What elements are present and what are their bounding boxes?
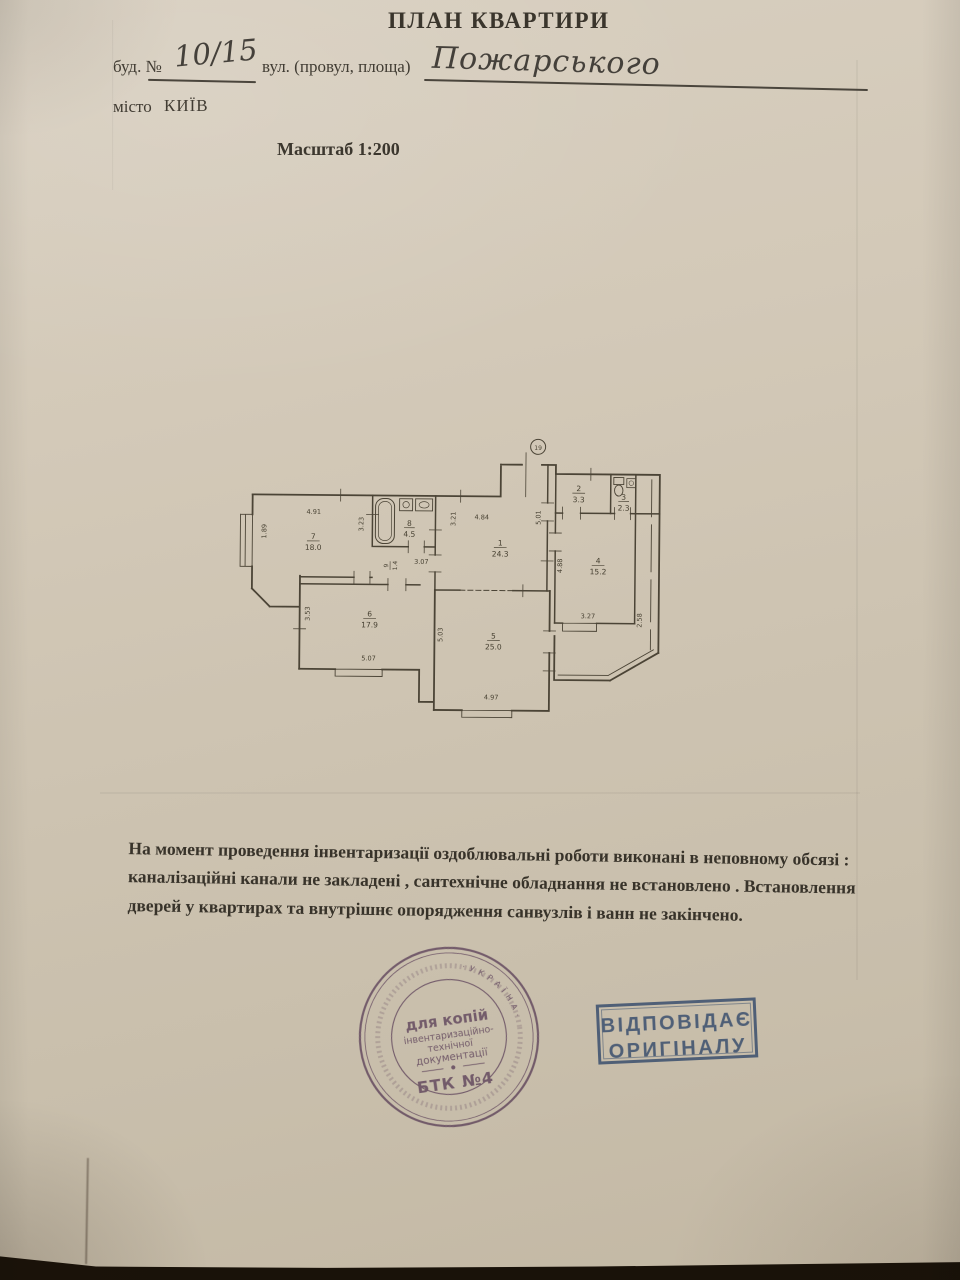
- svg-text:8: 8: [407, 519, 412, 528]
- svg-text:3.23: 3.23: [357, 517, 365, 532]
- svg-text:2: 2: [576, 484, 581, 493]
- svg-text:5.01: 5.01: [534, 510, 542, 525]
- inventory-note: На момент проведення інвентаризації оздо…: [127, 834, 876, 931]
- room-label-2: 2 3.3: [573, 484, 585, 504]
- svg-text:2.3: 2.3: [618, 504, 630, 513]
- svg-text:5.03: 5.03: [436, 627, 444, 642]
- round-stamp: · У К Р А Ї Н А · для копій інвентаризац…: [337, 925, 561, 1149]
- room-label-9: 9 1.4: [383, 561, 399, 571]
- bathtub-icon: [375, 498, 394, 543]
- svg-text:5: 5: [491, 631, 496, 640]
- svg-text:4: 4: [596, 556, 601, 565]
- svg-text:1: 1: [498, 539, 503, 548]
- svg-text:3.53: 3.53: [304, 606, 312, 621]
- scale-label: Масштаб 1:200: [277, 139, 400, 160]
- svg-text:3.07: 3.07: [414, 558, 429, 566]
- svg-text:4.5: 4.5: [403, 530, 415, 539]
- svg-text:6: 6: [367, 609, 372, 618]
- street-label: вул. (провул, площа): [262, 57, 411, 77]
- room-label-4: 4 15.2: [590, 556, 607, 576]
- corner-sink-icon: [627, 479, 636, 488]
- svg-text:18.0: 18.0: [305, 543, 322, 552]
- svg-text:19: 19: [534, 445, 542, 452]
- svg-text:25.0: 25.0: [485, 642, 502, 651]
- svg-text:1.4: 1.4: [392, 561, 399, 571]
- washer-icon: [400, 499, 413, 511]
- rect-stamp-line: ВІДПОВІДАЄ: [599, 1007, 754, 1040]
- city-label: місто: [113, 97, 152, 117]
- building-number-value: 10/15: [173, 32, 259, 73]
- svg-text:15.2: 15.2: [590, 567, 607, 576]
- room-label-5: 5 25.0: [485, 631, 502, 651]
- svg-text:4.88: 4.88: [556, 559, 564, 574]
- room-label-8: 8 4.5: [403, 519, 415, 539]
- sink-icon: [416, 499, 433, 511]
- svg-text:4.97: 4.97: [484, 693, 499, 701]
- svg-text:3: 3: [621, 493, 626, 502]
- room-label-7: 7 18.0: [305, 532, 322, 552]
- room-label-6: 6 17.9: [361, 609, 378, 629]
- svg-text:БТК №4: БТК №4: [416, 1068, 495, 1098]
- svg-text:1.89: 1.89: [260, 524, 268, 539]
- balcony-rail: [558, 649, 653, 676]
- room-label-1: 1 24.3: [492, 538, 509, 558]
- svg-text:5.07: 5.07: [361, 654, 376, 662]
- svg-text:2.58: 2.58: [636, 613, 644, 628]
- outer-walls: [251, 462, 660, 712]
- building-number-label: буд. №: [113, 57, 162, 77]
- svg-text:4.84: 4.84: [474, 513, 489, 521]
- scanned-document-page: { "doc": { "title": "ПЛАН КВАРТИРИ", "bu…: [0, 0, 960, 1280]
- svg-text:24.3: 24.3: [492, 549, 509, 558]
- svg-text:3.27: 3.27: [581, 612, 596, 620]
- svg-text:3.21: 3.21: [449, 512, 457, 527]
- svg-text:9: 9: [383, 563, 390, 567]
- svg-text:17.9: 17.9: [361, 620, 378, 629]
- page-title: ПЛАН КВАРТИРИ: [388, 8, 609, 34]
- city-value: КИЇВ: [164, 96, 209, 116]
- street-value: Пожарського: [432, 41, 662, 82]
- entrance-mark: 19: [531, 439, 546, 454]
- svg-text:3.3: 3.3: [573, 495, 585, 504]
- interior-walls: [300, 463, 660, 624]
- dimension-labels: 4.91 1.89 3.23 3.07 4.84 3.21 5.01 4.88 …: [259, 507, 645, 702]
- rect-stamp: ВІДПОВІДАЄ ОРИГІНАЛУ: [596, 997, 759, 1064]
- svg-text:4.91: 4.91: [307, 508, 322, 516]
- floor-plan: 19 7 18.0 8 4.5 1 24.3 2 3.3: [209, 418, 672, 732]
- svg-text:7: 7: [311, 532, 316, 541]
